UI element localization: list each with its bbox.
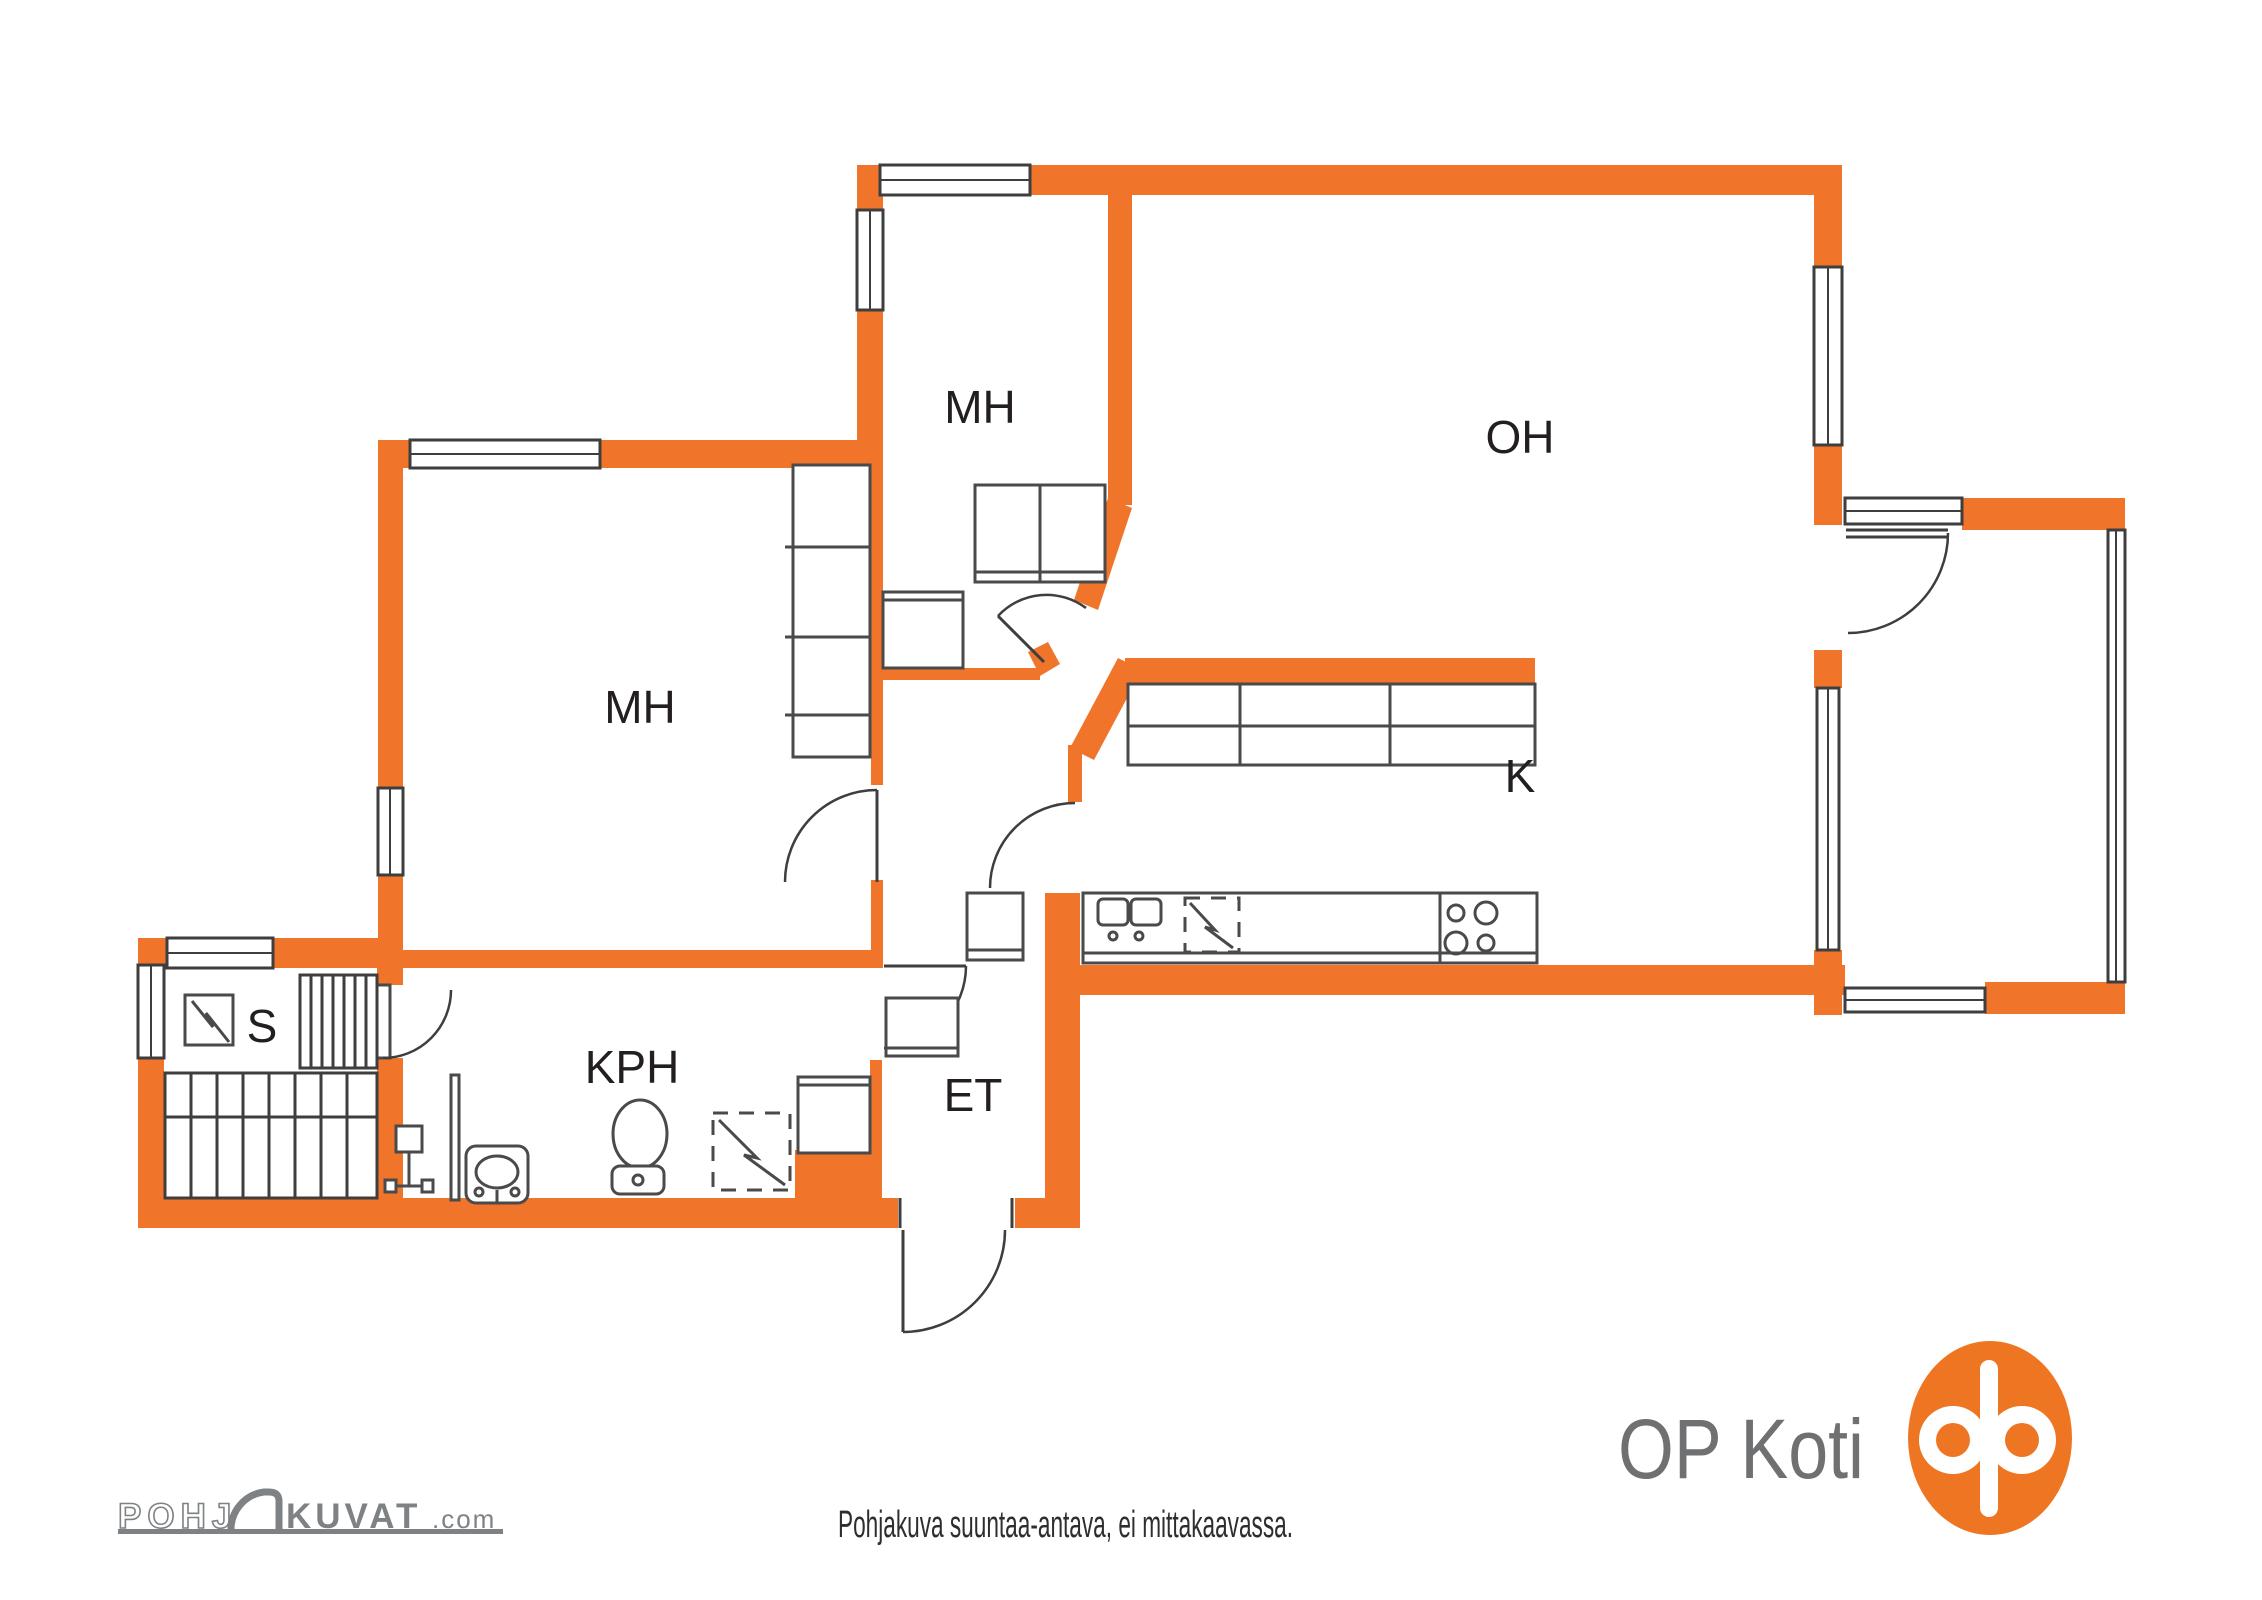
toilet-icon	[612, 1100, 667, 1194]
room-label-s: S	[247, 1000, 278, 1052]
room-label-mh-top: MH	[944, 381, 1016, 433]
window-left-mh-top	[410, 440, 600, 468]
disclaimer-text: Pohjakuva suuntaa-antava, ei mittakaavas…	[838, 1504, 1293, 1546]
door-entrance	[900, 1198, 1012, 1332]
door-left-mh	[785, 790, 877, 882]
room-label-mh-left: MH	[604, 681, 676, 733]
kitchen-counter	[1083, 893, 1537, 963]
window-top-mh-top	[880, 165, 1030, 195]
op-logo-icon	[1908, 1341, 2072, 1535]
door-balcony	[1846, 530, 1948, 633]
op-koti-wordmark: OP Koti	[1618, 1402, 1864, 1496]
pohjakuvat-logo: POHJ KUVAT .com	[118, 1492, 503, 1536]
window-oh-right-lower	[1817, 688, 1839, 950]
window-s-room-left	[138, 965, 164, 1058]
kitchen-cabinets-upper	[1128, 684, 1535, 765]
window-balcony-top	[1845, 498, 1962, 524]
cabinet-kph	[798, 1077, 870, 1153]
pohjakuvat-baseline	[118, 1529, 503, 1534]
closet-et	[886, 998, 958, 1056]
window-left-mh-left	[378, 788, 403, 875]
op-koti-logo: OP Koti	[1618, 1341, 2072, 1535]
door-sauna-stairs	[377, 985, 451, 1058]
door-arc-icon	[231, 1492, 279, 1531]
shower-screen	[451, 1075, 459, 1200]
window-balcony-bottom	[1845, 988, 1985, 1012]
closet-top-mh	[975, 485, 1105, 582]
room-label-oh: OH	[1486, 411, 1555, 463]
page: MH MH OH K KPH ET S Pohjakuva suuntaa-an…	[0, 0, 2262, 1600]
cabinet-et-kitchen-side	[967, 893, 1023, 960]
sauna-stove-icon	[185, 995, 233, 1045]
window-oh-right-upper	[1814, 267, 1842, 445]
room-label-et: ET	[944, 1069, 1003, 1121]
floor-plan: MH MH OH K KPH ET S Pohjakuva suuntaa-an…	[0, 0, 2262, 1600]
wardrobe-left-mh	[785, 465, 870, 757]
window-s-room-top	[167, 938, 273, 968]
room-label-kph: KPH	[585, 1041, 680, 1093]
room-label-k: K	[1505, 750, 1536, 802]
washbasin-icon	[466, 1146, 528, 1203]
washing-machine-reservation	[713, 1113, 790, 1190]
window-top-mh-left	[857, 210, 883, 310]
window-balcony-right	[2108, 530, 2125, 982]
closet-hall	[883, 592, 963, 668]
door-kitchen	[990, 803, 1075, 888]
